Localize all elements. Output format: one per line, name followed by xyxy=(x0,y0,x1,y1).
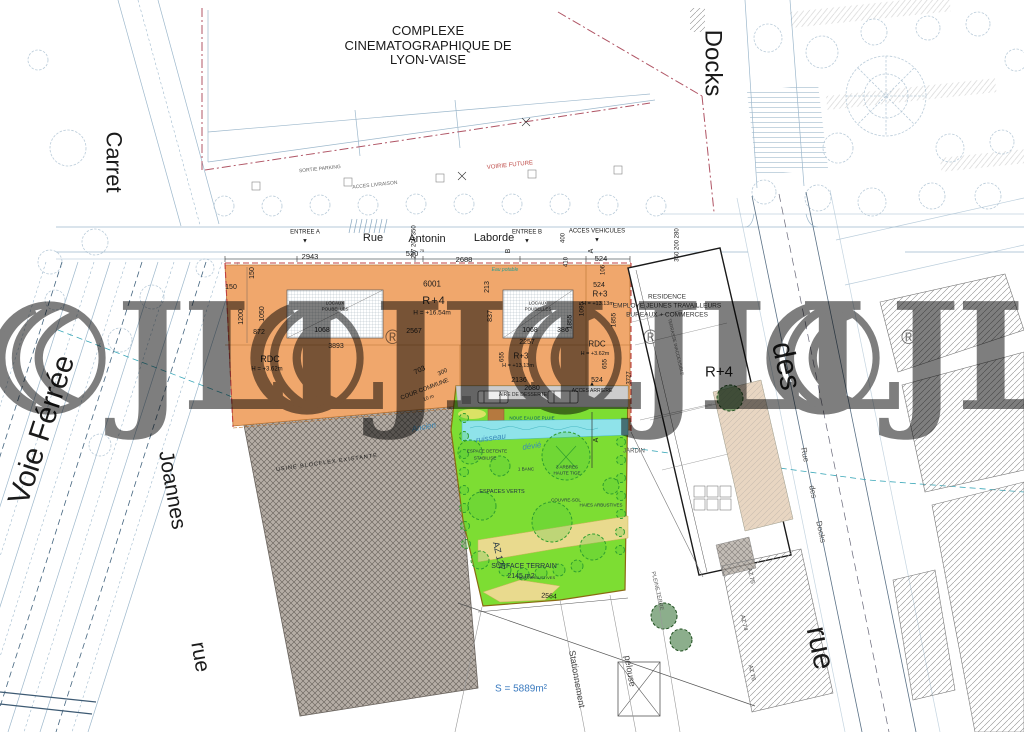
label-noue: NOUE EAU DE PLUIE xyxy=(509,415,554,420)
dim-1200: 1200 xyxy=(238,309,246,325)
acces-vehicules-marker-icon: ▼ xyxy=(594,238,600,245)
dim-2567: 2567 xyxy=(406,328,422,336)
street-rue-antonin-word3: Laborde xyxy=(474,232,514,244)
label-residence-line3: BUREAUX + COMMERCES xyxy=(626,311,708,318)
label-entree-b: ENTREE B xyxy=(512,230,542,237)
dim-2688: 2688 xyxy=(456,256,473,264)
dim-2943: 2943 xyxy=(302,253,319,261)
label-espaces-verts: ESPACES VERTS xyxy=(479,489,524,495)
label-r3-right-height: H = +13.13m xyxy=(582,301,614,307)
label-r4-main: R+4 xyxy=(422,295,446,307)
label-eau-potable: Eau potable xyxy=(492,268,519,274)
label-r3-mid-height: H = +13,13m xyxy=(502,363,534,369)
label-r4-main-height: H = +16.54m xyxy=(413,309,451,316)
label-aire-desserte: AIRE DE DESSERTE xyxy=(499,393,547,399)
dim-106: 106 xyxy=(601,265,608,275)
label-locaux2-line2: POUBELLES xyxy=(525,306,552,311)
dim-2257: 2257 xyxy=(519,339,535,347)
label-arbres-line1: 3 ARBRES xyxy=(556,464,578,469)
dim-524-top: 524 xyxy=(595,255,608,263)
label-surface-totale: S = 5889m² xyxy=(495,683,547,694)
dim-655b: 655 xyxy=(603,359,610,369)
label-espace-detente: ESPACE DETENTE xyxy=(467,448,507,453)
street-carret: Carret xyxy=(101,131,126,192)
label-r3-right: R+3 xyxy=(593,291,608,300)
label-banc: 1 BANC xyxy=(518,466,534,471)
marker-a: A xyxy=(588,249,596,254)
street-rue-left: rue xyxy=(186,640,214,674)
label-residence-line1: RESIDENCE xyxy=(648,293,686,300)
dim-524-bottom: 524 xyxy=(591,377,603,385)
dim-655a: 655 xyxy=(500,352,507,362)
plan-title-line3: LYON-VAISE xyxy=(303,53,553,68)
site-plan-page: .cad{stroke:#9db8cc;stroke-width:0.7;fil… xyxy=(0,0,1024,732)
dim-1855b: 1855 xyxy=(610,313,617,327)
label-acces-vehicules: ACCES VEHICULES xyxy=(569,229,625,236)
label-locaux1-line1: LOCAUX xyxy=(326,300,345,305)
dim-297-200-350: 297 200 350 xyxy=(412,225,419,258)
dim-1068a: 1068 xyxy=(314,327,330,335)
label-locaux1-line2: POUBELLES xyxy=(322,306,349,311)
entree-a-marker-icon: ▼ xyxy=(302,239,308,246)
street-rue-des-docks-w2: des xyxy=(806,485,817,499)
dim-2136: 2136 xyxy=(511,377,527,385)
label-r4-residence: R+4 xyxy=(705,365,733,382)
label-r3-mid: R+3 xyxy=(514,353,529,362)
plan-title-line2: CINEMATOGRAPHIQUE DE xyxy=(303,39,553,54)
label-rdc-left-height: H = +3.62m xyxy=(251,367,282,374)
label-rdc-right-height: H = +3.62m xyxy=(581,351,610,357)
label-acces-arriere: ACCES ARRIERE xyxy=(572,389,613,395)
plan-title-line1: COMPLEXE xyxy=(303,24,553,39)
label-rdc-right: RDC xyxy=(588,341,605,350)
dim-520-sup: 75 xyxy=(420,249,424,253)
street-rue-antonin-word1: Rue xyxy=(363,232,383,244)
street-rue-des-docks-w1: Rue xyxy=(798,447,810,463)
marker-b: B xyxy=(505,249,513,254)
label-stabilise: STABILISE xyxy=(474,455,496,460)
dim-213: 213 xyxy=(484,281,492,293)
dim-2564: 2564 xyxy=(541,593,557,602)
label-entree-a: ENTREE A xyxy=(290,230,320,237)
dim-3893: 3893 xyxy=(328,343,344,351)
street-docks-top: Docks xyxy=(699,30,726,97)
dim-350-200-280: 350 200 280 xyxy=(675,228,682,261)
label-residence-line2: EMPLOYE JEUNES TRAVAILLEURS xyxy=(613,302,721,309)
dim-1068b: 1068 xyxy=(522,327,538,335)
label-jardin: JARDIN xyxy=(623,449,645,456)
dim-6001: 6001 xyxy=(423,281,441,290)
dim-1050: 1050 xyxy=(259,306,267,322)
dim-3727: 3727 xyxy=(627,371,634,384)
dim-837: 837 xyxy=(487,310,495,322)
dim-150b: 150 xyxy=(249,267,257,279)
label-haies2: HAIES ARBUSTIVES xyxy=(517,576,555,580)
label-couvre-sol: COUVRE-SOL xyxy=(551,497,581,502)
plan-title: COMPLEXE CINEMATOGRAPHIQUE DE LYON-VAISE xyxy=(303,24,553,68)
dim-400: 400 xyxy=(561,233,568,243)
dim-150a: 150 xyxy=(225,284,237,292)
label-rdc-left: RDC xyxy=(260,354,280,364)
label-locaux2-line1: LOCAUX xyxy=(529,300,548,305)
dim-872: 872 xyxy=(253,329,265,337)
label-arbres-line2: HAUTE TIGE xyxy=(554,470,581,475)
entree-b-marker-icon: ▼ xyxy=(524,239,530,246)
label-section-a: A xyxy=(593,438,601,443)
label-haies: HAIES ARBUSTIVES xyxy=(579,502,622,507)
dim-1855a: 1855 xyxy=(566,315,573,329)
dim-410: 410 xyxy=(564,257,571,267)
